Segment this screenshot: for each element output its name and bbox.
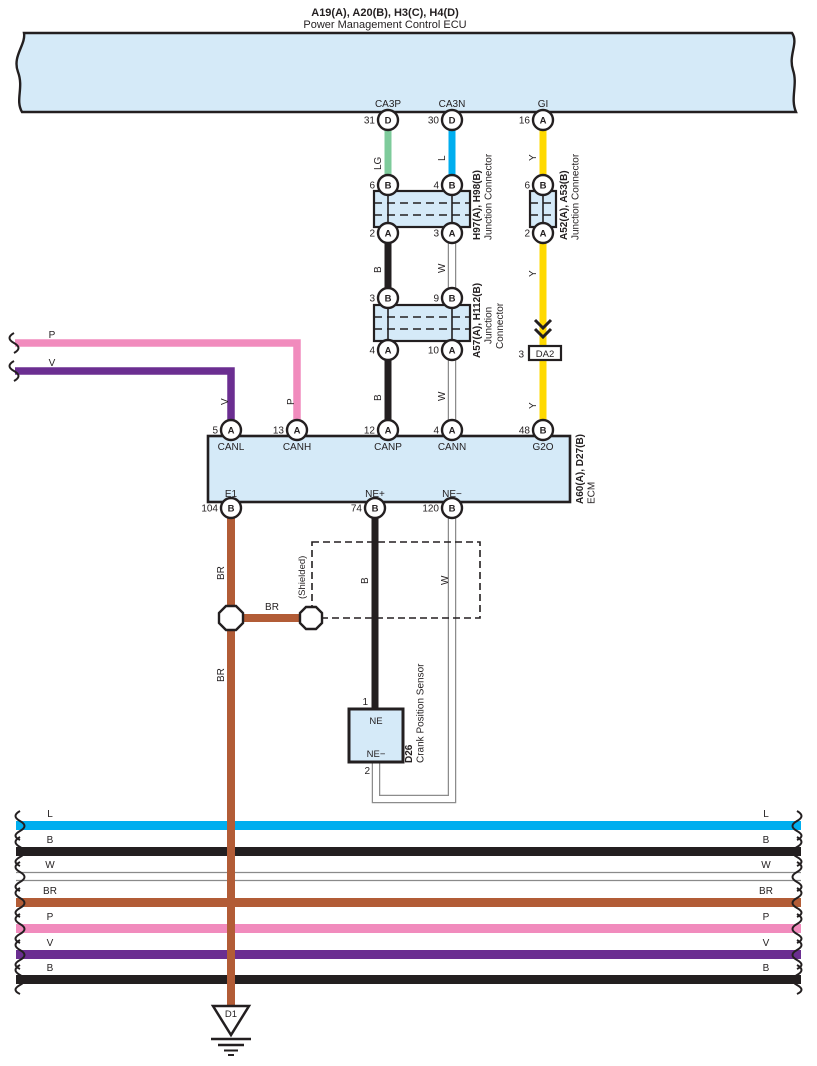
wire-label-y1: Y — [528, 154, 539, 161]
junction-h97-label: H97(A), H98(B)Junction Connector — [472, 153, 495, 240]
band-br — [16, 898, 801, 907]
crank-sensor-label: D26Crank Position Sensor — [404, 663, 427, 763]
svg-text:D: D — [449, 116, 456, 127]
wire-label-w2: W — [437, 391, 448, 401]
shielded-label: (Shielded) — [297, 556, 308, 599]
wire-label-p-horiz: P — [49, 330, 56, 341]
svg-text:4: 4 — [369, 346, 375, 357]
svg-text:12: 12 — [364, 426, 376, 437]
band-label-l-left: L — [47, 809, 53, 820]
svg-text:4: 4 — [433, 426, 439, 437]
band-label-b2-right: B — [763, 963, 770, 974]
power-management-ecu-band — [16, 33, 796, 112]
svg-text:3: 3 — [369, 294, 375, 305]
wire-label-b2: B — [373, 394, 384, 401]
svg-text:120: 120 — [422, 504, 439, 515]
svg-text:9: 9 — [433, 294, 439, 305]
svg-text:2: 2 — [369, 229, 375, 240]
bus-bands — [16, 821, 801, 984]
svg-text:30: 30 — [428, 116, 440, 127]
svg-text:A: A — [294, 426, 301, 437]
junction-a57-label: A57(A), H112(B)JunctionConnector — [472, 283, 506, 358]
ecu-title: A19(A), A20(B), H3(C), H4(D) — [311, 7, 459, 19]
svg-text:B: B — [540, 181, 547, 192]
svg-text:31: 31 — [364, 116, 376, 127]
svg-text:B: B — [372, 504, 379, 515]
ecm-label: A60(A), D27(B)ECM — [575, 434, 598, 504]
ecm-terminal-canh: CANH — [283, 442, 311, 453]
svg-text:D: D — [385, 116, 392, 127]
wire-label-w3: W — [440, 575, 451, 585]
ecu-terminal-gi: GI — [538, 99, 549, 110]
band-label-v-right: V — [763, 938, 770, 949]
band-label-b1-left: B — [47, 835, 54, 846]
junction-connector-a52 — [530, 191, 556, 227]
svg-text:B: B — [449, 294, 456, 305]
ground-label: D1 — [225, 1009, 237, 1020]
band-b2 — [16, 975, 801, 984]
svg-text:16: 16 — [519, 116, 531, 127]
band-label-p-right: P — [763, 912, 770, 923]
ecm-terminal-g2o: G2O — [532, 442, 553, 453]
ecu-terminal-ca3n: CA3N — [439, 99, 466, 110]
torn-edges — [10, 333, 802, 994]
band-p — [16, 924, 801, 933]
svg-text:A: A — [228, 426, 235, 437]
wire-label-y2: Y — [528, 270, 539, 277]
ecm-terminal-canl: CANL — [218, 442, 245, 453]
svg-text:B: B — [385, 181, 392, 192]
ecu-subtitle: Power Management Control ECU — [303, 19, 466, 31]
ground-d1: D1 — [211, 1006, 251, 1055]
svg-text:48: 48 — [519, 426, 531, 437]
wire-label-br2: BR — [216, 668, 227, 682]
sensor-terminal-ne-minus: NE− — [367, 749, 386, 760]
sensor-pin-2: 2 — [364, 766, 370, 777]
band-label-br-left: BR — [43, 886, 57, 897]
ecm-terminal-canp: CANP — [374, 442, 402, 453]
wire-p — [15, 343, 297, 436]
ecm-terminal-cann: CANN — [438, 442, 466, 453]
band-label-l-right: L — [763, 809, 769, 820]
wire-label-b1: B — [373, 266, 384, 273]
pin-j3-bottom-2: A10 — [428, 340, 462, 360]
band-label-w-left: W — [45, 860, 55, 871]
svg-text:6: 6 — [524, 181, 530, 192]
junction-a52-label: A52(A), A53(B)Junction Connector — [559, 153, 582, 240]
sensor-terminal-ne: NE — [369, 716, 382, 727]
svg-text:B: B — [540, 426, 547, 437]
pin-j2-top: B6 — [524, 175, 553, 195]
ecm-terminal-ne-plus: NE+ — [365, 489, 385, 500]
band-label-v-left: V — [47, 938, 54, 949]
band-w — [16, 872, 801, 881]
ecu-terminal-ca3p: CA3P — [375, 99, 401, 110]
wire-label-v-vert: V — [220, 398, 231, 405]
ecm-terminal-e1: E1 — [225, 489, 238, 500]
band-label-b2-left: B — [47, 963, 54, 974]
wire-label-p-vert: P — [286, 398, 297, 405]
band-label-b1-right: B — [763, 835, 770, 846]
wire-v — [15, 371, 231, 436]
svg-text:6: 6 — [369, 181, 375, 192]
band-v — [16, 950, 801, 959]
wire-label-b3: B — [360, 577, 371, 584]
wire-label-w1: W — [437, 263, 448, 273]
wire-label-v-horiz: V — [49, 358, 56, 369]
svg-text:104: 104 — [201, 504, 218, 515]
svg-text:5: 5 — [212, 426, 218, 437]
da2-label: DA2 — [536, 349, 554, 360]
wire-label-lg: LG — [373, 156, 384, 170]
svg-text:74: 74 — [351, 504, 363, 515]
svg-text:B: B — [449, 504, 456, 515]
band-l — [16, 821, 801, 830]
svg-text:A: A — [540, 116, 547, 127]
svg-text:A: A — [385, 346, 392, 357]
wire-label-y3: Y — [528, 402, 539, 409]
svg-text:A: A — [449, 346, 456, 357]
ecm-terminal-ne-minus: NE− — [442, 489, 462, 500]
wire-label-br-horiz: BR — [265, 602, 279, 613]
splice-octagon-left — [219, 606, 243, 630]
svg-text:2: 2 — [524, 229, 530, 240]
svg-text:B: B — [449, 181, 456, 192]
splice-octagon-right — [300, 607, 322, 629]
svg-text:A: A — [540, 229, 547, 240]
svg-text:B: B — [228, 504, 235, 515]
wire-label-br1: BR — [216, 566, 227, 580]
pin-j3-bottom-1: A4 — [369, 340, 398, 360]
junction-connector-a57 — [374, 305, 470, 341]
wiring-diagram-page: DA2 3 D1 D31 D30 A16 B6 B4 A2 A3 B6 A2 B… — [0, 0, 817, 1061]
band-b1 — [16, 847, 801, 856]
svg-text:4: 4 — [433, 181, 439, 192]
svg-text:10: 10 — [428, 346, 440, 357]
band-label-br-right: BR — [759, 886, 773, 897]
svg-text:B: B — [385, 294, 392, 305]
band-label-w-right: W — [761, 860, 771, 871]
svg-text:A: A — [449, 426, 456, 437]
svg-text:A: A — [449, 229, 456, 240]
da2-pin-number: 3 — [518, 350, 524, 361]
svg-text:3: 3 — [433, 229, 439, 240]
svg-text:A: A — [385, 229, 392, 240]
svg-text:A: A — [385, 426, 392, 437]
svg-text:13: 13 — [273, 426, 285, 437]
wire-label-l: L — [437, 155, 448, 161]
wiring-diagram: DA2 3 D1 D31 D30 A16 B6 B4 A2 A3 B6 A2 B… — [0, 0, 817, 1061]
sensor-pin-1: 1 — [362, 697, 368, 708]
junction-connector-h97 — [374, 191, 470, 227]
pin-j2-bottom: A2 — [524, 223, 553, 243]
band-label-p-left: P — [47, 912, 54, 923]
